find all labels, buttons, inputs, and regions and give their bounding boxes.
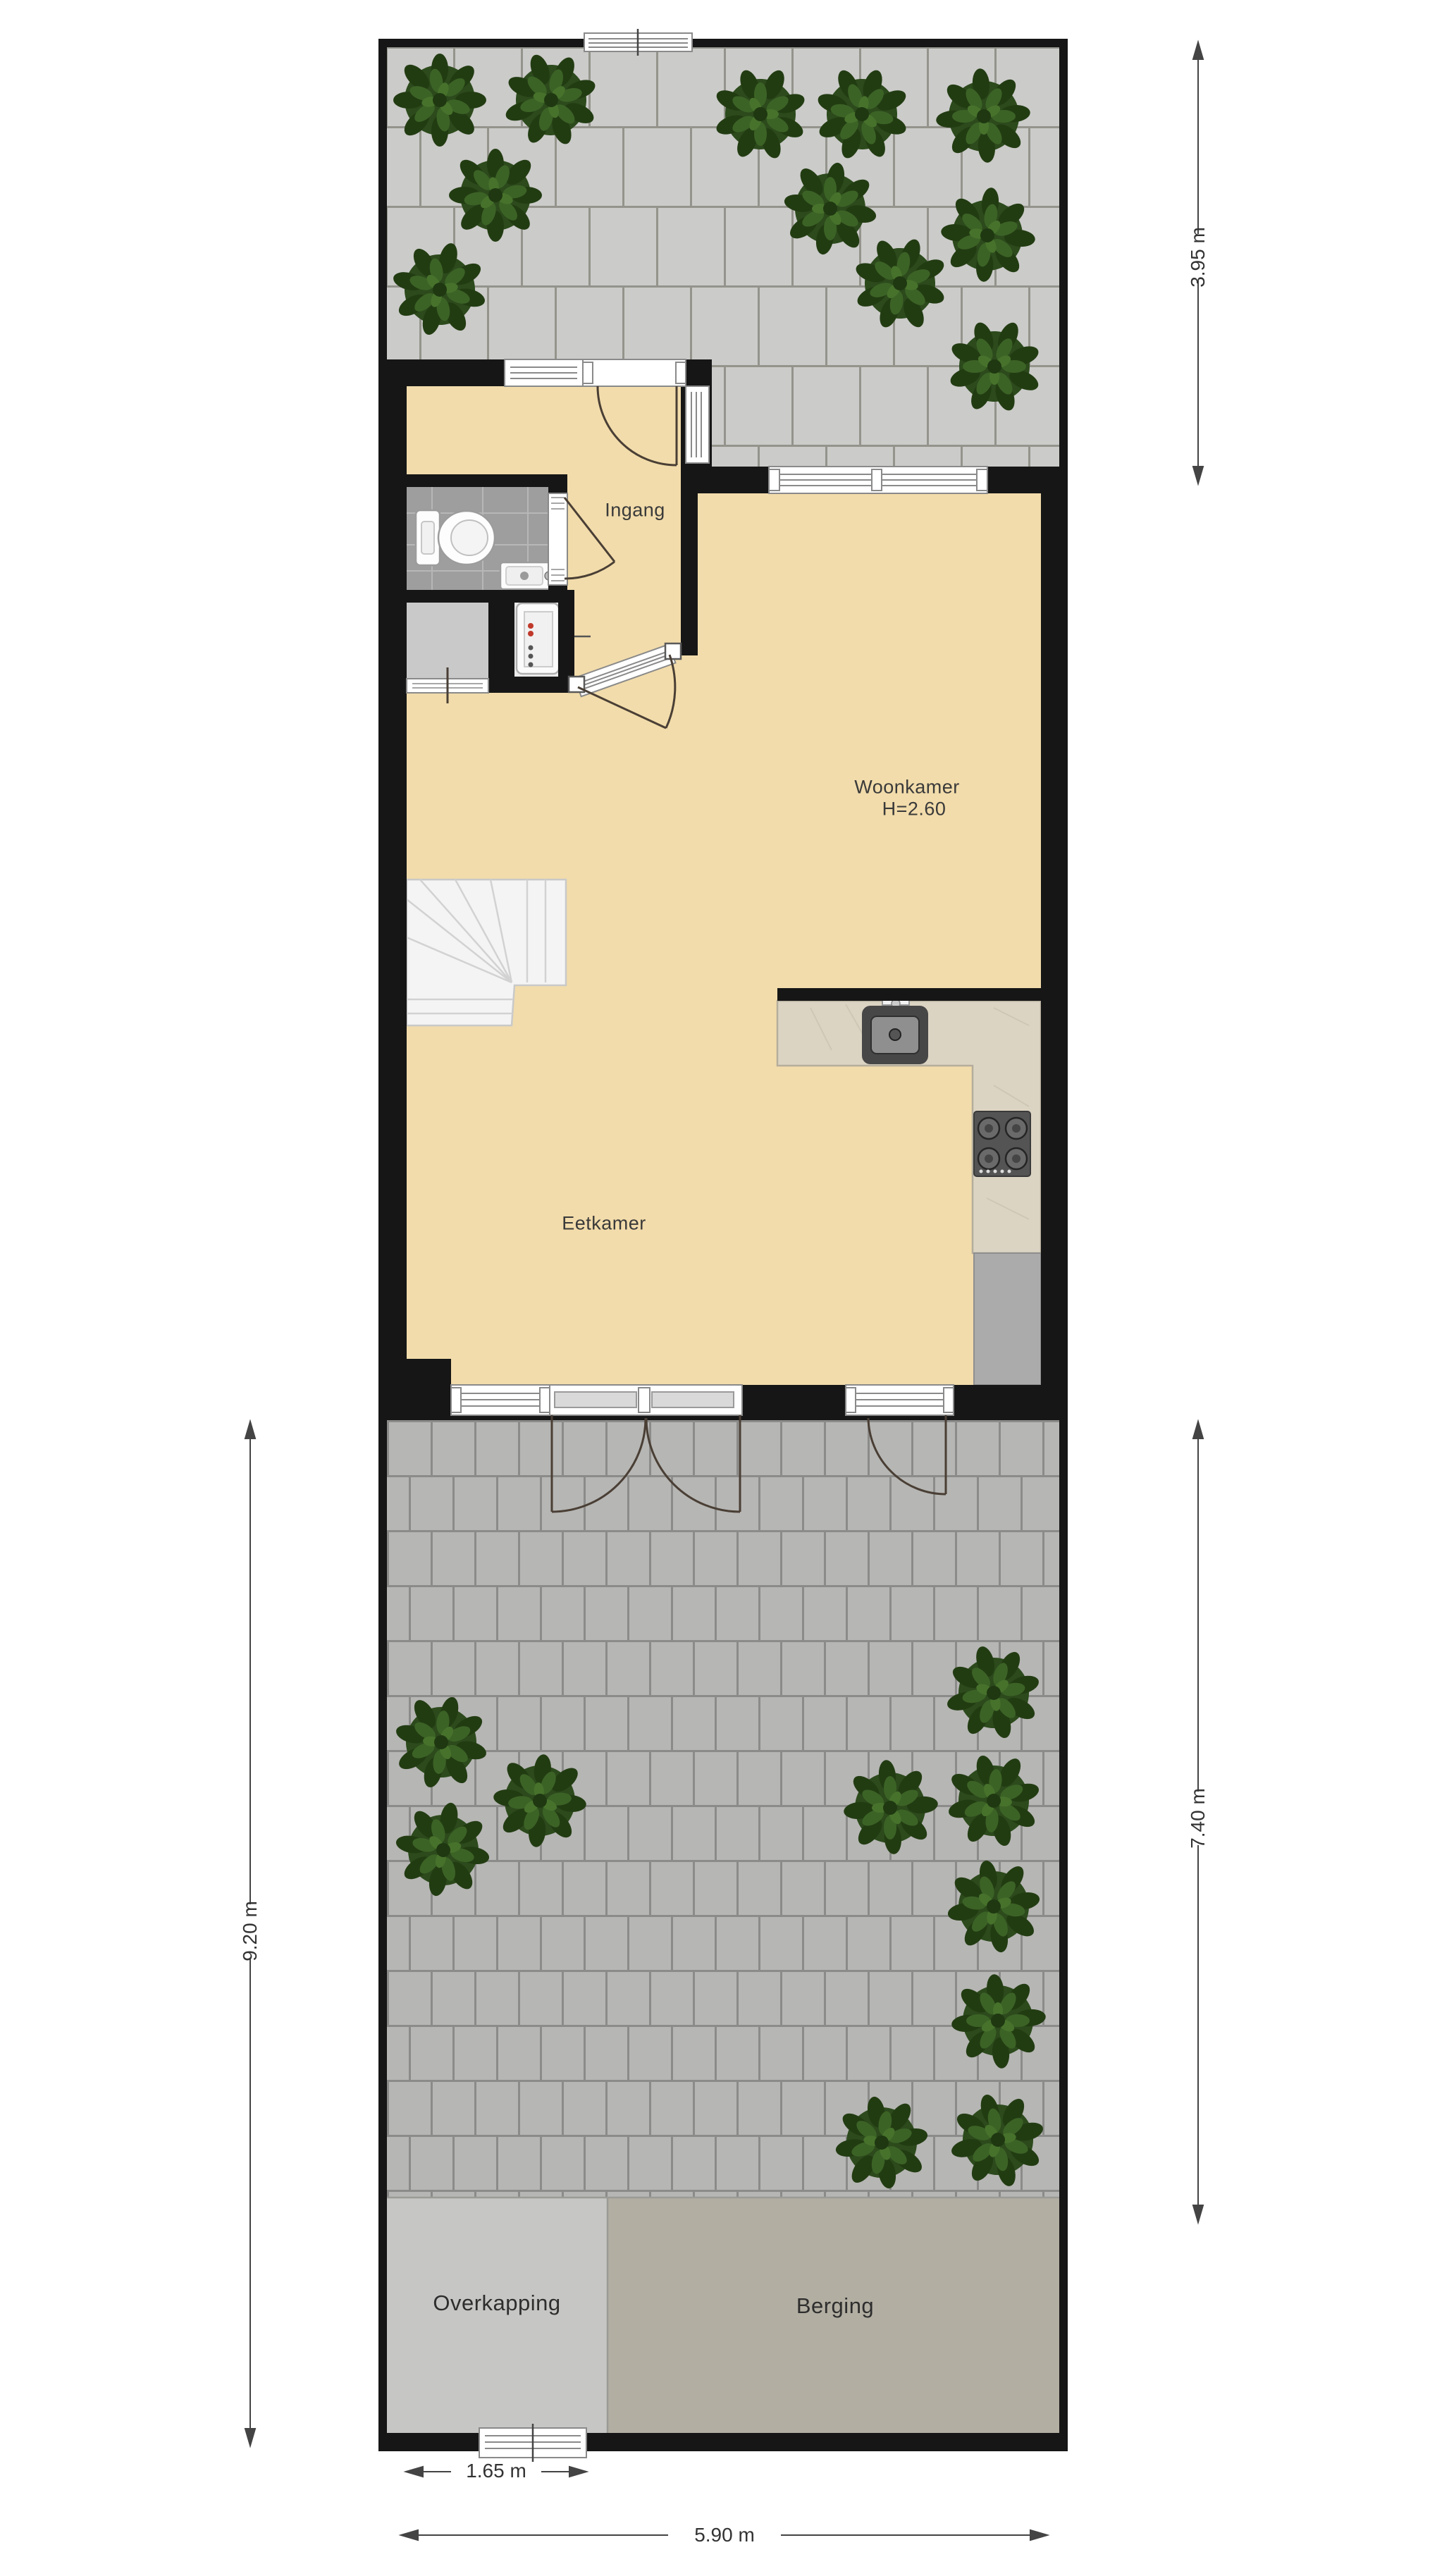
- closet-divider-wall: [488, 598, 514, 693]
- bottom-gate-icon: [479, 2424, 586, 2462]
- bush-icon: [393, 54, 486, 147]
- toilet-icon: [416, 510, 495, 565]
- room-label-overkapping: Overkapping: [433, 2291, 560, 2316]
- window-icon: [505, 359, 583, 386]
- boundary-wall-left-bottom: [378, 1420, 387, 2433]
- bush-icon: [449, 149, 542, 242]
- dimension-garden-top: 3.95 m: [1187, 227, 1209, 288]
- boiler-closet-wall-bottom: [514, 677, 574, 693]
- room-label-woonkamer: Woonkamer: [854, 777, 960, 799]
- bathroom: [407, 487, 557, 590]
- dimension-gate-width: 1.65 m: [466, 2460, 526, 2482]
- stove-icon: [974, 1111, 1030, 1176]
- room-label-berging: Berging: [796, 2293, 874, 2319]
- boundary-wall-left-top: [378, 39, 387, 359]
- window-icon: [686, 386, 709, 463]
- closet-floor: [407, 598, 488, 679]
- window-icon: [769, 467, 987, 493]
- dimension-plot-width: 5.90 m: [694, 2524, 755, 2546]
- boundary-wall-top: [378, 39, 1068, 47]
- room-label-ingang: Ingang: [605, 500, 665, 522]
- bathroom-wall-top: [378, 474, 567, 487]
- room-label-eetkamer: Eetkamer: [562, 1213, 646, 1235]
- room-label-woonkamer-height: H=2.60: [882, 799, 947, 820]
- top-gate-icon: [584, 29, 692, 56]
- dimension-garden-bottom-right: 7.40 m: [1187, 1788, 1209, 1849]
- kitchen-wall: [777, 988, 1041, 1001]
- house-wall-left: [378, 359, 407, 1420]
- fridge-icon: [974, 1253, 1041, 1385]
- floorplan-page: Ingang Woonkamer H=2.60 Eetkamer Overkap…: [0, 0, 1449, 2576]
- dimension-garden-bottom-left: 9.20 m: [239, 1901, 261, 1961]
- window-icon: [451, 1385, 550, 1415]
- hall-wall: [681, 493, 698, 655]
- bathroom-wall-bottom: [378, 590, 574, 603]
- house-wall-right: [1041, 467, 1068, 1420]
- floorplan-canvas: [0, 0, 1449, 2576]
- house-wall-bottom-corner: [378, 1359, 451, 1385]
